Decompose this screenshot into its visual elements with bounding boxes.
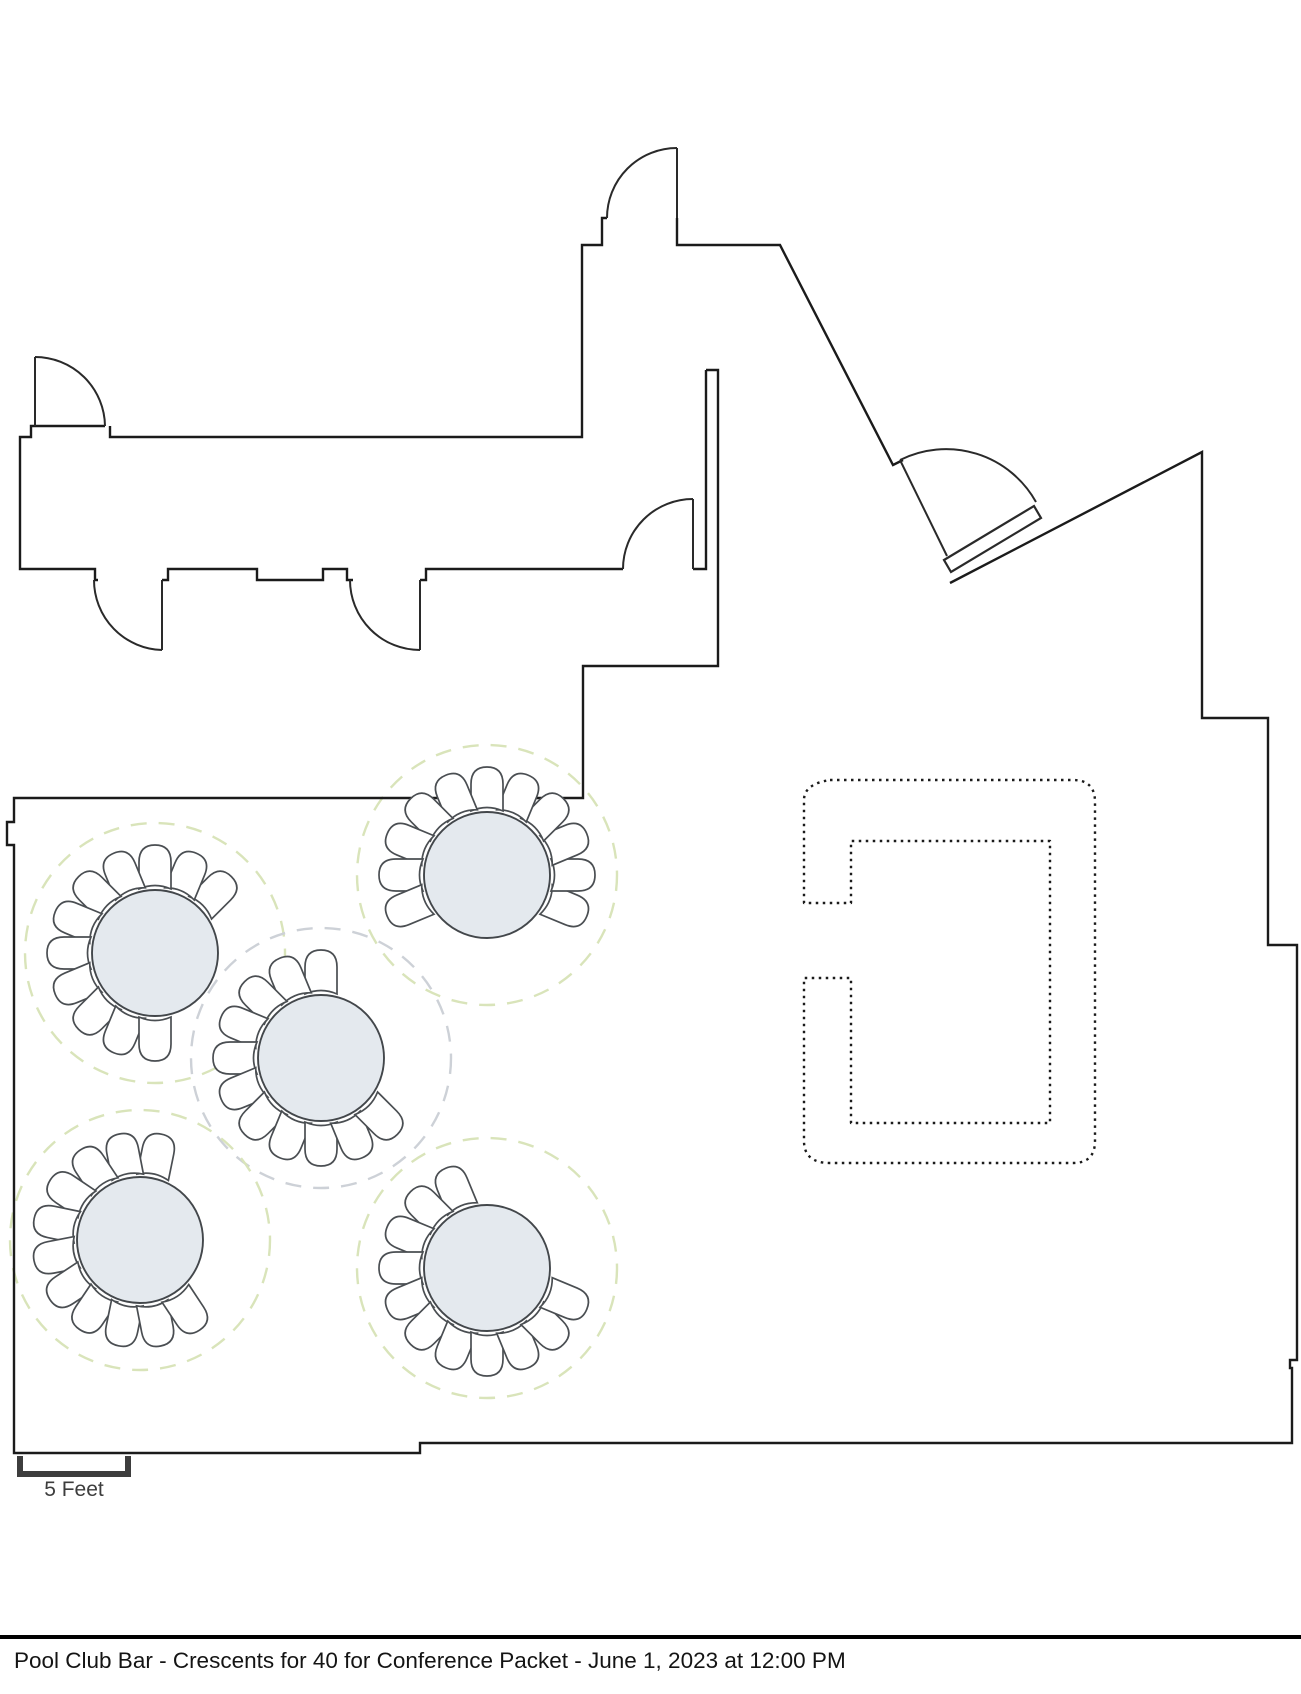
round-table xyxy=(92,890,218,1016)
door-swing-arc xyxy=(94,580,162,650)
door-swing-arc xyxy=(607,148,677,218)
floor-plan-page: 5 Feet Pool Club Bar - Crescents for 40 … xyxy=(0,0,1301,1694)
table-group-5 xyxy=(379,1162,593,1376)
wall-outline xyxy=(20,426,105,580)
walls-layer xyxy=(7,218,1297,1453)
doors-layer xyxy=(35,148,1041,650)
table-group-2 xyxy=(379,767,595,938)
table-group-1 xyxy=(47,845,243,1061)
bar-counter-layer xyxy=(804,780,1095,1163)
wall-outline xyxy=(420,569,623,580)
door-panel xyxy=(900,460,947,556)
footer: Pool Club Bar - Crescents for 40 for Con… xyxy=(0,1637,1301,1673)
tables-layer xyxy=(31,767,595,1376)
door-swing-arc xyxy=(350,580,420,650)
floor-plan-canvas: 5 Feet Pool Club Bar - Crescents for 40 … xyxy=(0,0,1301,1694)
door-swing-arc xyxy=(623,499,693,569)
wall-outline xyxy=(110,218,607,437)
wall-outline xyxy=(677,218,903,465)
door-swing-arc xyxy=(900,449,1036,502)
round-table xyxy=(77,1177,203,1303)
scale-bar-label: 5 Feet xyxy=(44,1478,104,1501)
table-group-3 xyxy=(213,950,409,1166)
door-swing-arc xyxy=(35,357,105,426)
round-table xyxy=(424,1205,550,1331)
scale-bar: 5 Feet xyxy=(20,1456,128,1501)
scale-bar-bracket xyxy=(20,1456,128,1474)
page-title: Pool Club Bar - Crescents for 40 for Con… xyxy=(14,1648,846,1673)
round-table xyxy=(258,995,384,1121)
wall-outline xyxy=(693,370,706,569)
table-group-4 xyxy=(31,1131,213,1349)
bar-counter-outline xyxy=(804,780,1095,1163)
round-table xyxy=(424,812,550,938)
wall-outline xyxy=(162,569,353,580)
chair xyxy=(139,1017,171,1061)
